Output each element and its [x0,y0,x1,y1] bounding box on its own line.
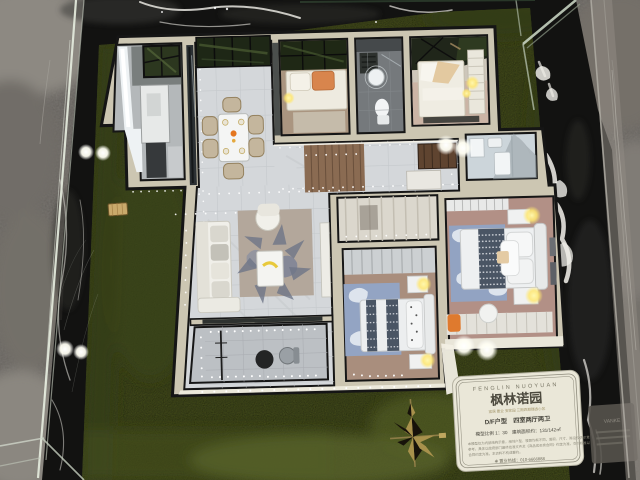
svg-text:枫林诺园: 枫林诺园 [490,390,543,408]
svg-text:VANKE: VANKE [604,418,622,425]
